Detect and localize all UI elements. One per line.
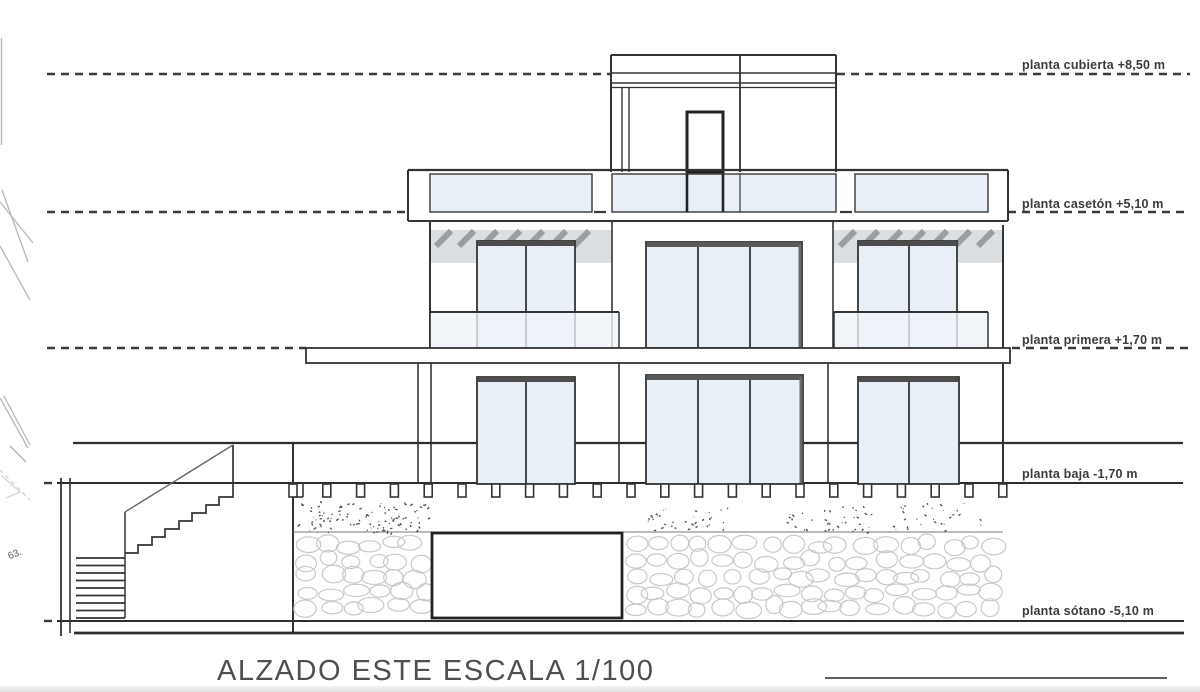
level-label-baja: planta baja -1,70 m (1022, 467, 1138, 481)
roof-terrace-parapet (408, 170, 1008, 221)
ground-floor-window-right (858, 377, 959, 484)
terrain-contours (0, 38, 33, 500)
ground-floor-window-left (477, 377, 575, 484)
elevation-drawing (0, 0, 1200, 692)
stair-steps (125, 445, 233, 553)
stair-handrail (125, 445, 233, 512)
ground-floor (418, 363, 1003, 484)
railing-balusters (289, 484, 1007, 497)
floor-slab (306, 348, 1010, 363)
ground-floor-window-center (646, 375, 803, 484)
parapet-glass-left (430, 174, 592, 212)
first-floor (430, 221, 1003, 348)
drawing-title: ALZADO ESTE ESCALA 1/100 (217, 655, 654, 688)
parapet-glass-right (855, 174, 988, 212)
staircase (61, 445, 233, 636)
ladder-rungs (76, 558, 125, 618)
basement-opening (432, 533, 622, 618)
first-floor-window-center (646, 242, 802, 348)
level-label-primera: planta primera +1,70 m (1022, 333, 1162, 347)
stone-masonry-texture (294, 534, 1006, 619)
level-label-cubierta: planta cubierta +8,50 m (1022, 58, 1165, 72)
elevation-drawing-sheet: planta cubierta +8,50 m planta casetón +… (0, 0, 1200, 692)
balcony-railing-right (834, 312, 988, 348)
vegetation-speckles (298, 501, 982, 535)
level-label-caseton: planta casetón +5,10 m (1022, 197, 1164, 211)
scan-smudge (0, 686, 1200, 692)
balcony-railing-left (430, 312, 619, 348)
caseton (611, 55, 836, 172)
level-label-sotano: planta sótano -5,10 m (1022, 604, 1154, 618)
caseton-door (687, 112, 723, 172)
